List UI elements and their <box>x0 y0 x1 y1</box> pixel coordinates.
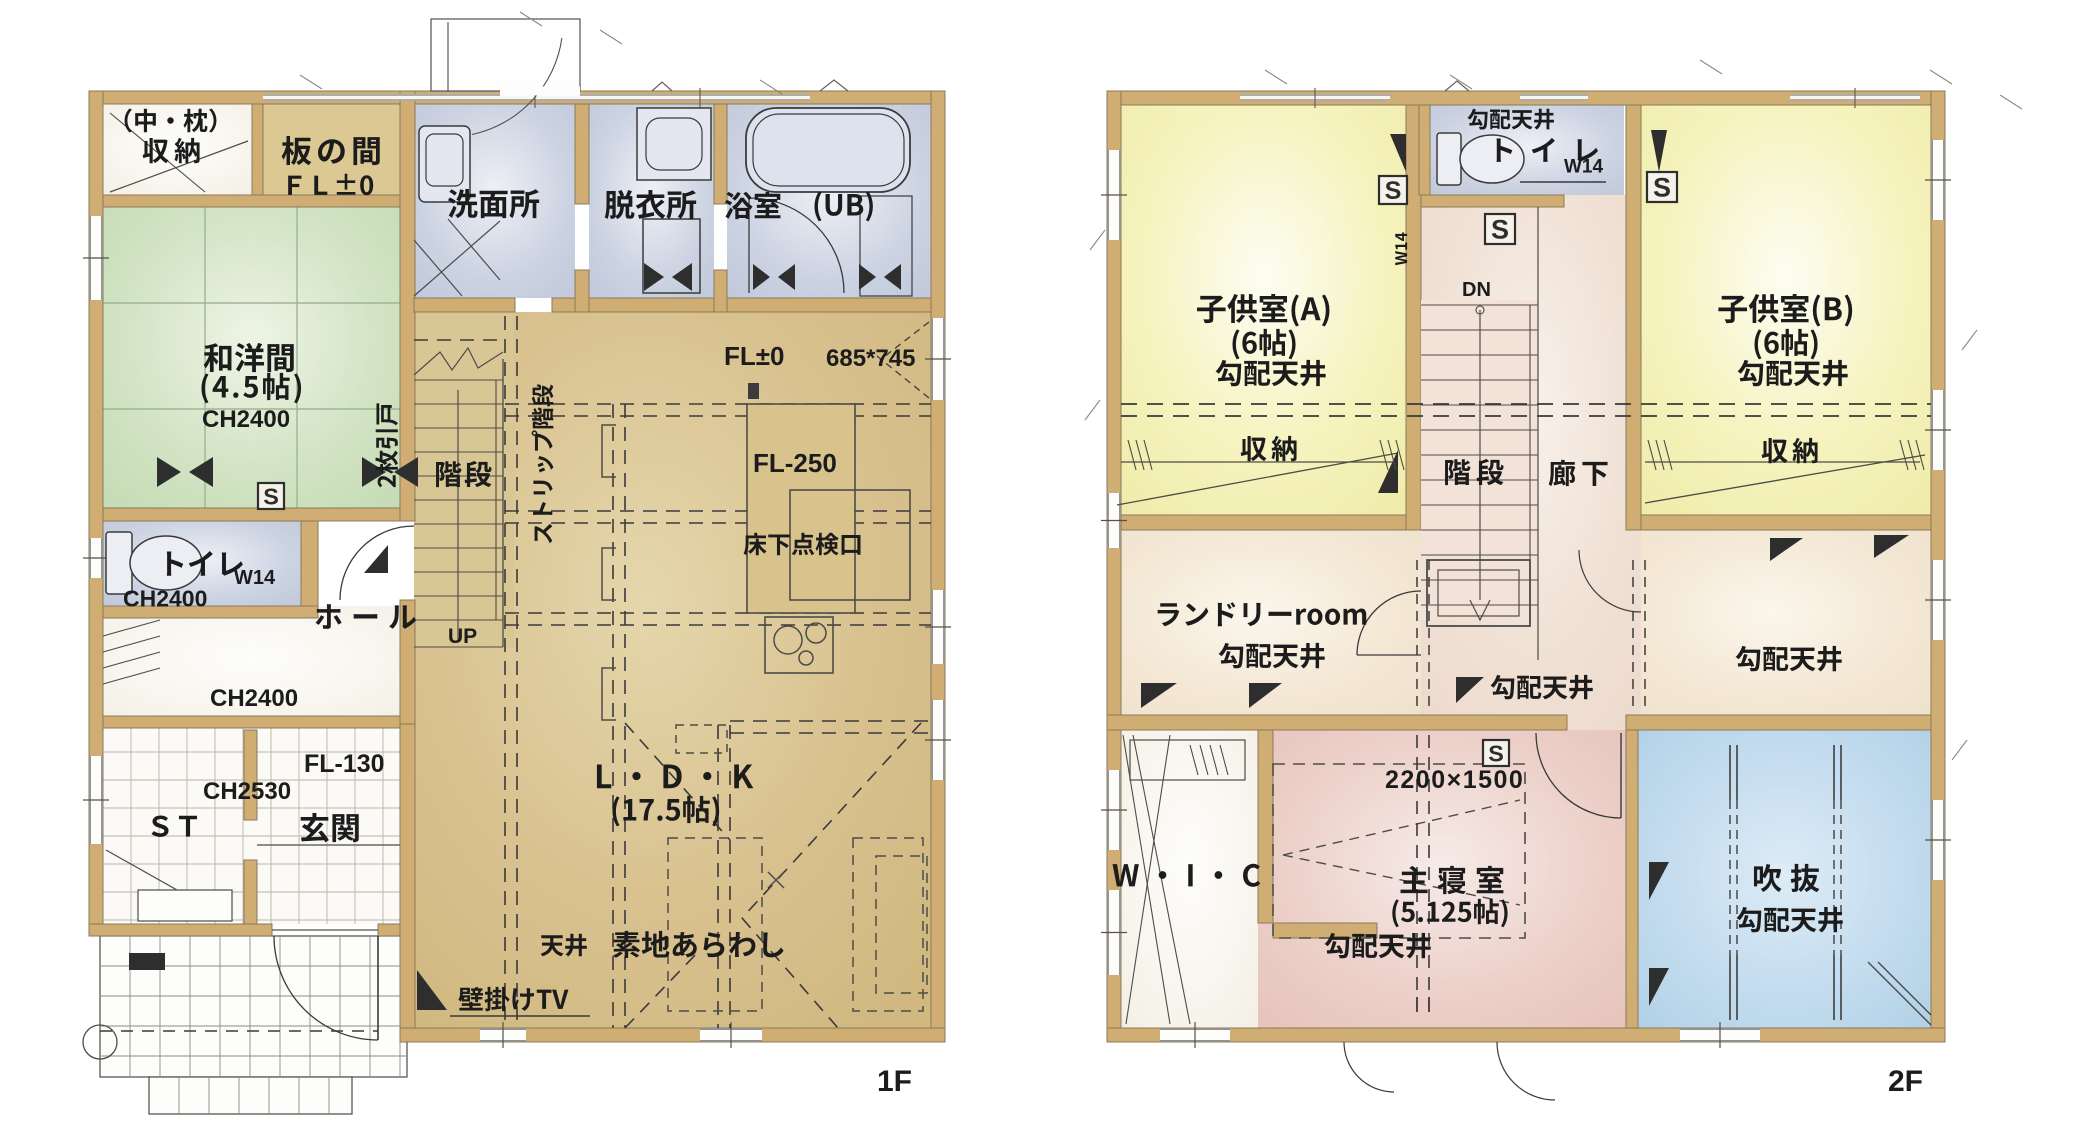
svg-text:DN: DN <box>1462 279 1491 301</box>
svg-text:2200×1500: 2200×1500 <box>1385 766 1524 794</box>
svg-text:1F: 1F <box>877 1065 912 1098</box>
svg-text:FL-250: FL-250 <box>753 448 837 478</box>
svg-text:W14: W14 <box>1564 156 1604 177</box>
svg-text:S: S <box>1385 177 1402 205</box>
svg-text:FL-130: FL-130 <box>304 750 385 778</box>
svg-text:685*745: 685*745 <box>826 345 915 372</box>
svg-text:CH2400: CH2400 <box>210 685 298 712</box>
svg-text:CH2400: CH2400 <box>202 406 290 433</box>
svg-text:2F: 2F <box>1888 1065 1923 1098</box>
svg-text:CH2400: CH2400 <box>123 586 207 612</box>
svg-text:CH2530: CH2530 <box>203 778 291 805</box>
svg-text:UP: UP <box>448 625 477 648</box>
svg-text:S: S <box>1653 173 1671 203</box>
svg-text:W14: W14 <box>234 567 276 589</box>
svg-text:FL±0: FL±0 <box>724 341 785 371</box>
svg-text:S: S <box>1488 740 1504 766</box>
svg-text:S: S <box>1491 215 1509 245</box>
svg-text:S: S <box>263 483 279 509</box>
